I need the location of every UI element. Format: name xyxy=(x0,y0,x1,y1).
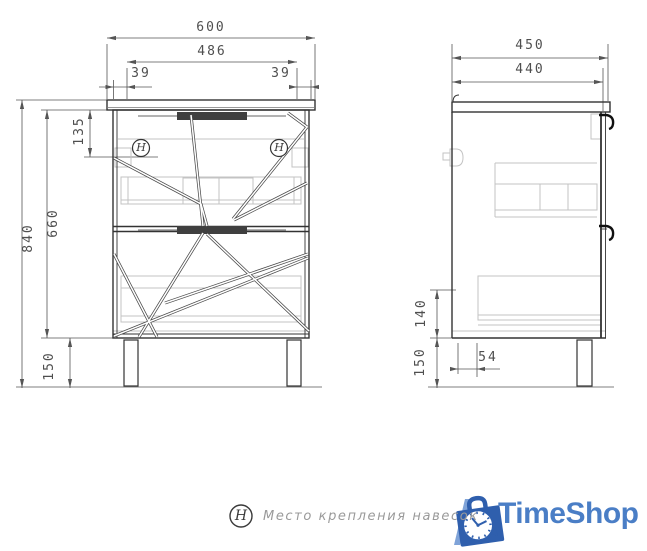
technical-drawing: 600 486 39 39 840 660 135 150 450 440 14… xyxy=(0,0,647,551)
wall-bracket-screw xyxy=(443,153,450,160)
dim-side-leg-height: 150 xyxy=(413,342,429,382)
dim-front-overall-height: 840 xyxy=(21,218,37,258)
side-view-hidden-lines xyxy=(443,114,606,331)
mount-symbol-left: H xyxy=(134,140,148,156)
dim-front-mount-offset: 135 xyxy=(72,111,88,151)
dim-front-left-offset: 39 xyxy=(127,66,155,82)
mount-symbol-right: H xyxy=(272,140,286,156)
top-drawer-handle xyxy=(177,112,247,120)
dim-front-cabinet-height: 660 xyxy=(46,203,62,243)
legend-label: Место крепления навесок xyxy=(263,509,479,524)
front-mount-circles xyxy=(133,140,288,157)
timeshop-logo-text: TimeShop xyxy=(498,497,638,531)
dim-side-inner-depth: 440 xyxy=(507,62,553,78)
dim-side-leg-inset: 54 xyxy=(473,350,503,366)
dimension-arrows xyxy=(20,36,608,388)
drawing-linework xyxy=(0,0,647,551)
dim-front-leg-height: 150 xyxy=(42,346,58,386)
dim-front-right-offset: 39 xyxy=(267,66,295,82)
bottom-drawer-handle xyxy=(177,226,247,234)
dim-front-overall-width: 600 xyxy=(188,20,234,36)
dimension-lines xyxy=(16,38,614,388)
legend-symbol: H xyxy=(232,508,250,524)
dim-front-inner-width: 486 xyxy=(189,44,235,60)
dim-side-bottom-section: 140 xyxy=(414,293,430,333)
dim-side-overall-depth: 450 xyxy=(507,38,553,54)
side-view-outline xyxy=(452,95,610,386)
